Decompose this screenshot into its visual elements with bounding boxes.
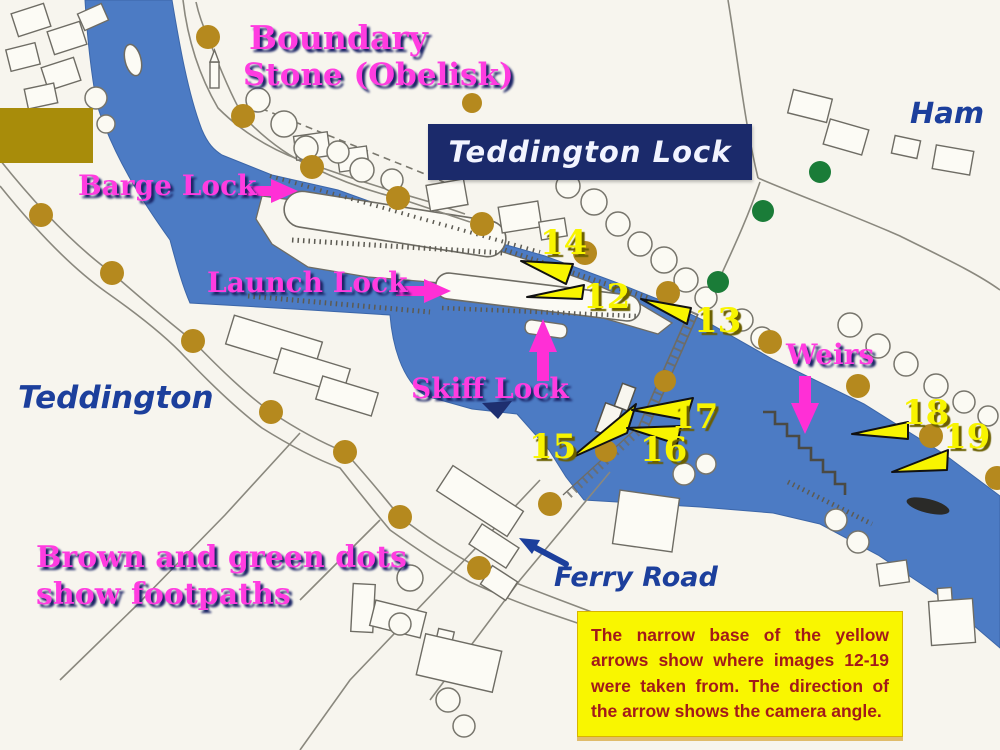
teddington-lock-map: Teddington Lock Boundary Stone (Obelisk)… bbox=[0, 0, 1000, 750]
camera-point-17: 17 bbox=[671, 400, 718, 434]
boundary-stone-label-line1: Boundary bbox=[249, 18, 428, 57]
footpath-legend-line2: show footpaths bbox=[36, 577, 291, 612]
teddington-label: Teddington bbox=[18, 380, 214, 416]
camera-point-12: 12 bbox=[583, 280, 630, 314]
obelisk-icon bbox=[210, 50, 219, 88]
ferry-road-label: Ferry Road bbox=[554, 562, 718, 593]
camera-point-16: 16 bbox=[640, 433, 687, 467]
launch-lock-label: Launch Lock bbox=[207, 266, 408, 299]
barge-lock-label: Barge Lock bbox=[78, 169, 257, 202]
camera-point-19: 19 bbox=[943, 420, 990, 454]
ham-label: Ham bbox=[910, 96, 984, 130]
map-title: Teddington Lock bbox=[449, 135, 732, 169]
camera-note-text: The narrow base of the yellow arrows sho… bbox=[591, 623, 889, 725]
camera-note-box: The narrow base of the yellow arrows sho… bbox=[577, 611, 903, 737]
ferry-road-arrow bbox=[519, 538, 566, 564]
gold-bar bbox=[0, 108, 93, 163]
skiff-lock-label: Skiff Lock bbox=[411, 372, 569, 405]
weirs-label: Weirs bbox=[786, 338, 874, 371]
camera-point-15: 15 bbox=[529, 430, 576, 464]
map-title-box: Teddington Lock bbox=[428, 124, 752, 180]
footpath-legend-line1: Brown and green dots bbox=[36, 540, 407, 575]
boundary-stone-label-line2: Stone (Obelisk) bbox=[243, 57, 514, 93]
camera-point-13: 13 bbox=[694, 304, 741, 338]
camera-point-14: 14 bbox=[540, 226, 587, 260]
footpath-dots-green bbox=[707, 161, 831, 293]
